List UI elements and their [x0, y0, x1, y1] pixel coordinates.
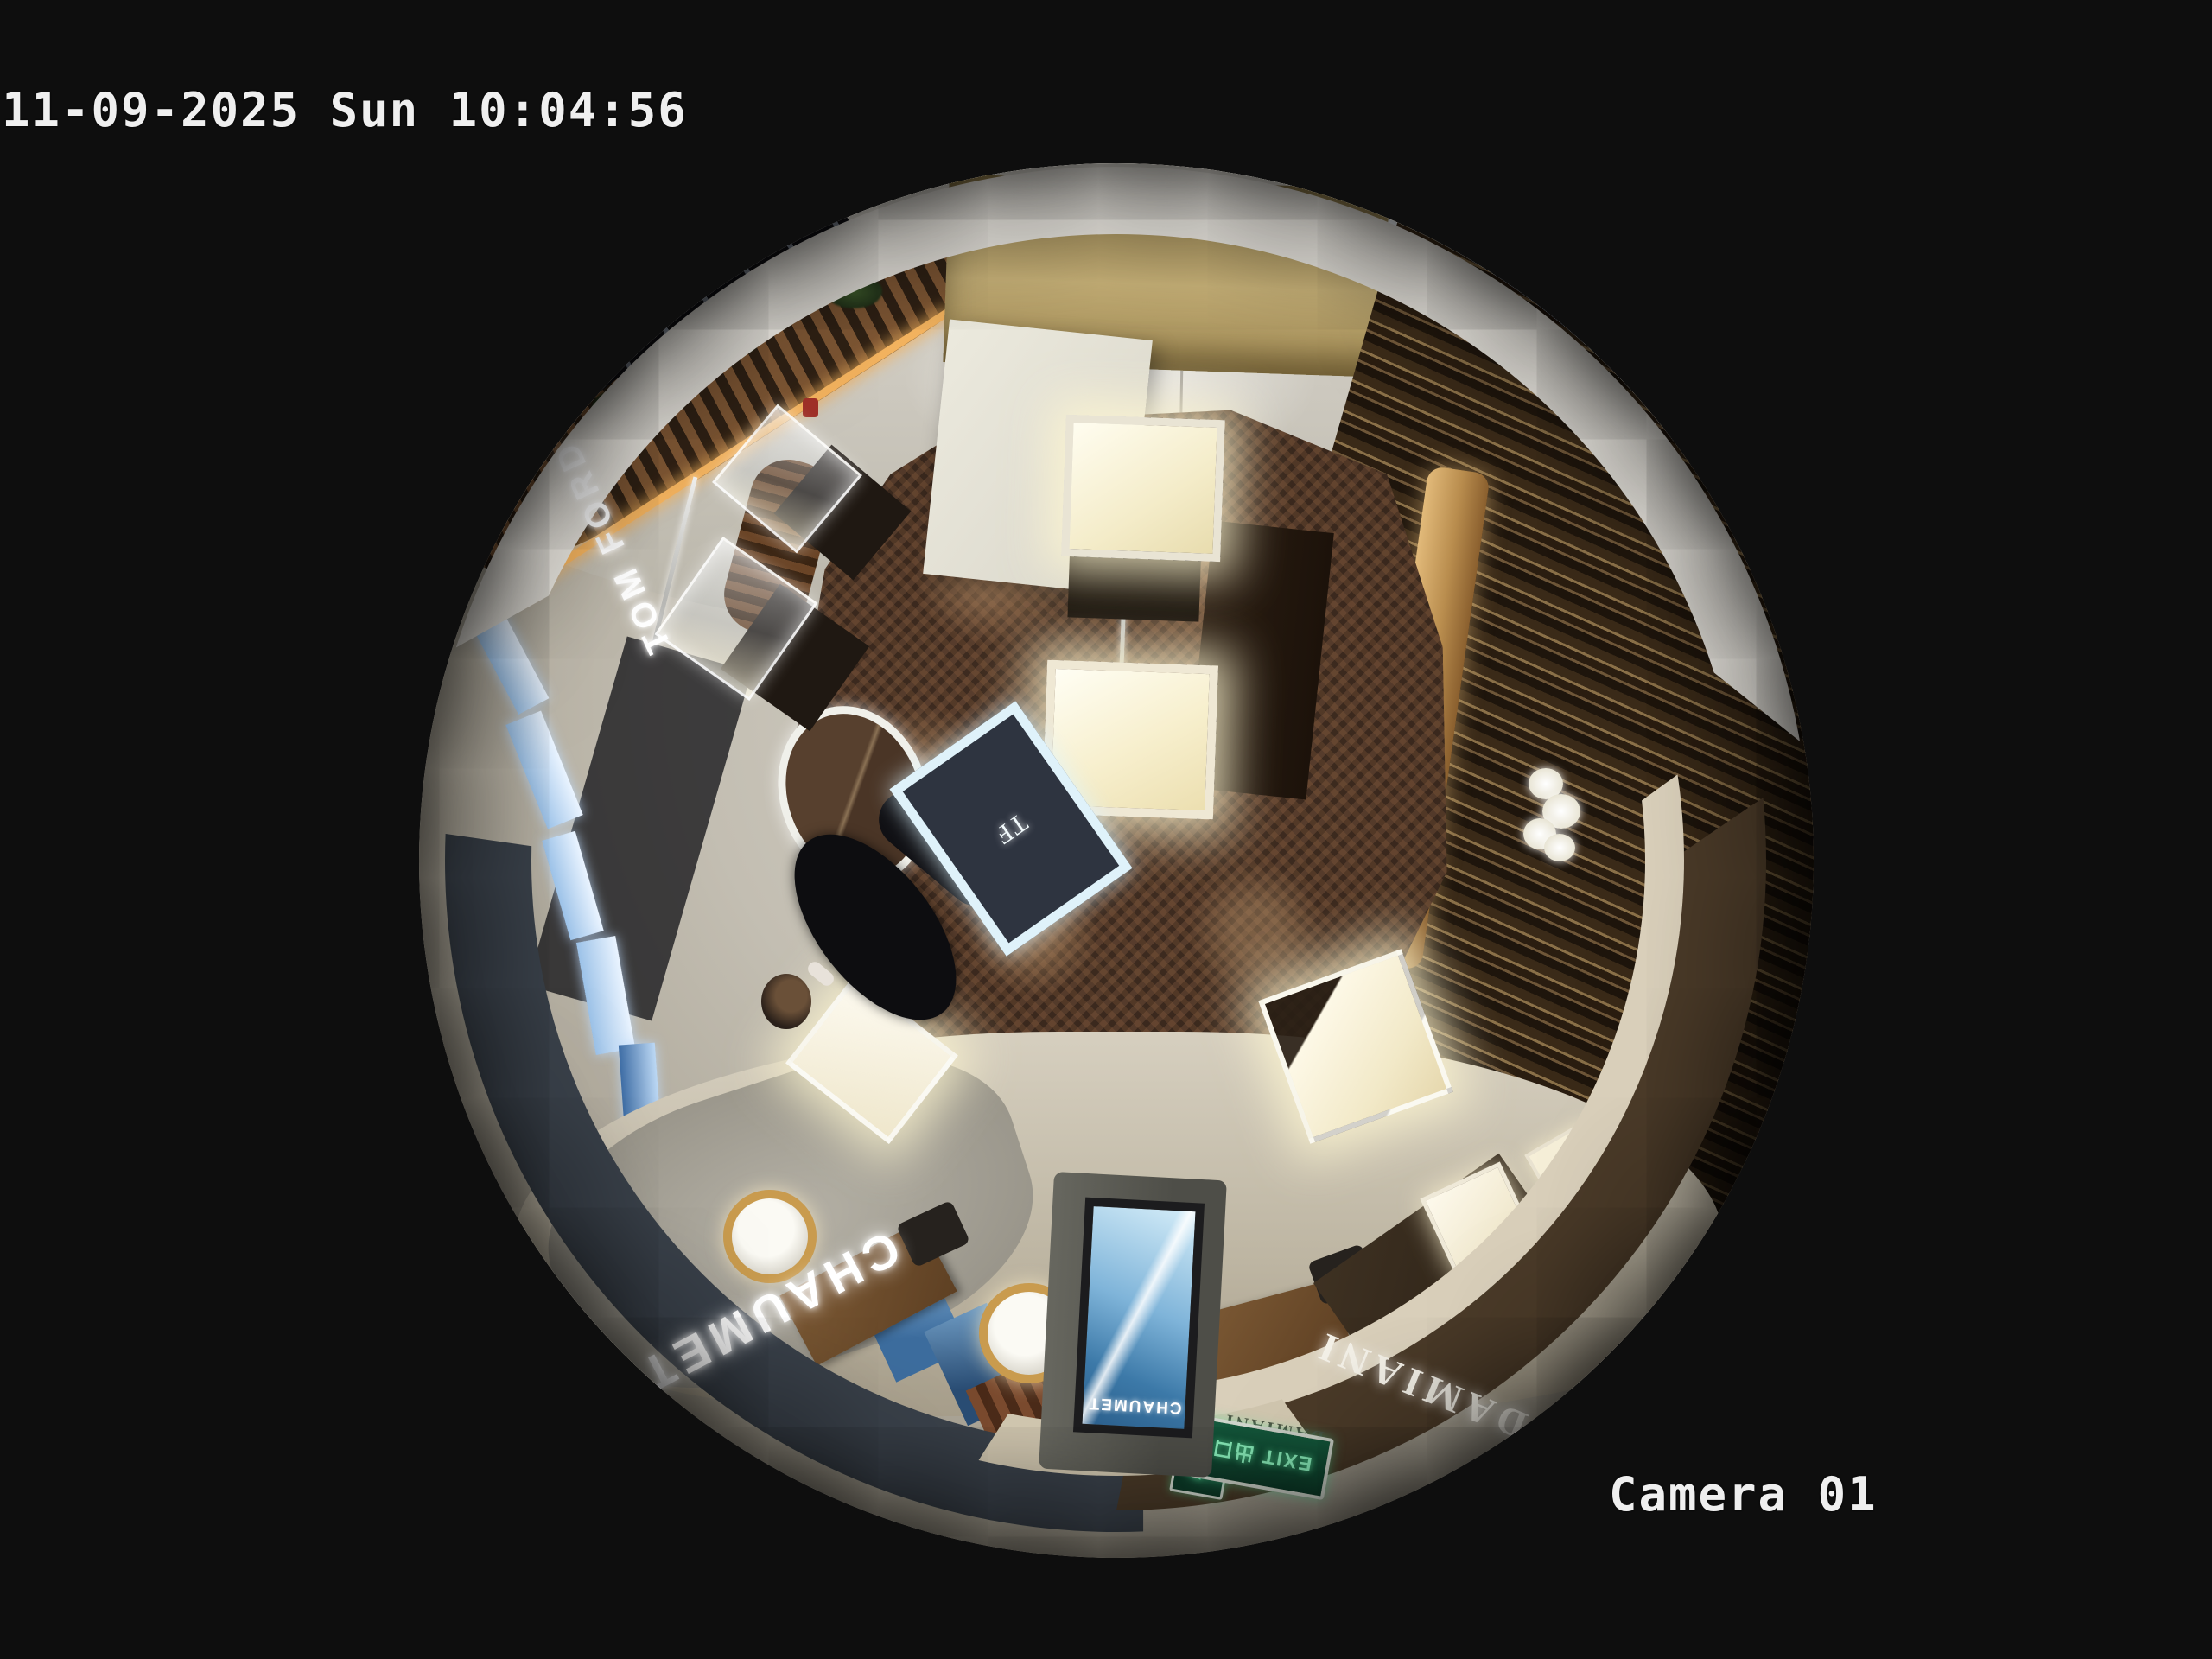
cctv-frame: CHAUMET DAMIANI DAMIANI TOM FORD TF EXIT… [0, 0, 2212, 1659]
fisheye-vignette [419, 163, 1814, 1558]
fisheye-circle: CHAUMET DAMIANI DAMIANI TOM FORD TF EXIT… [419, 163, 1814, 1558]
timestamp-overlay: 11-09-2025 Sun 10:04:56 [2, 83, 688, 137]
camera-label: Camera 01 [1609, 1467, 1878, 1522]
